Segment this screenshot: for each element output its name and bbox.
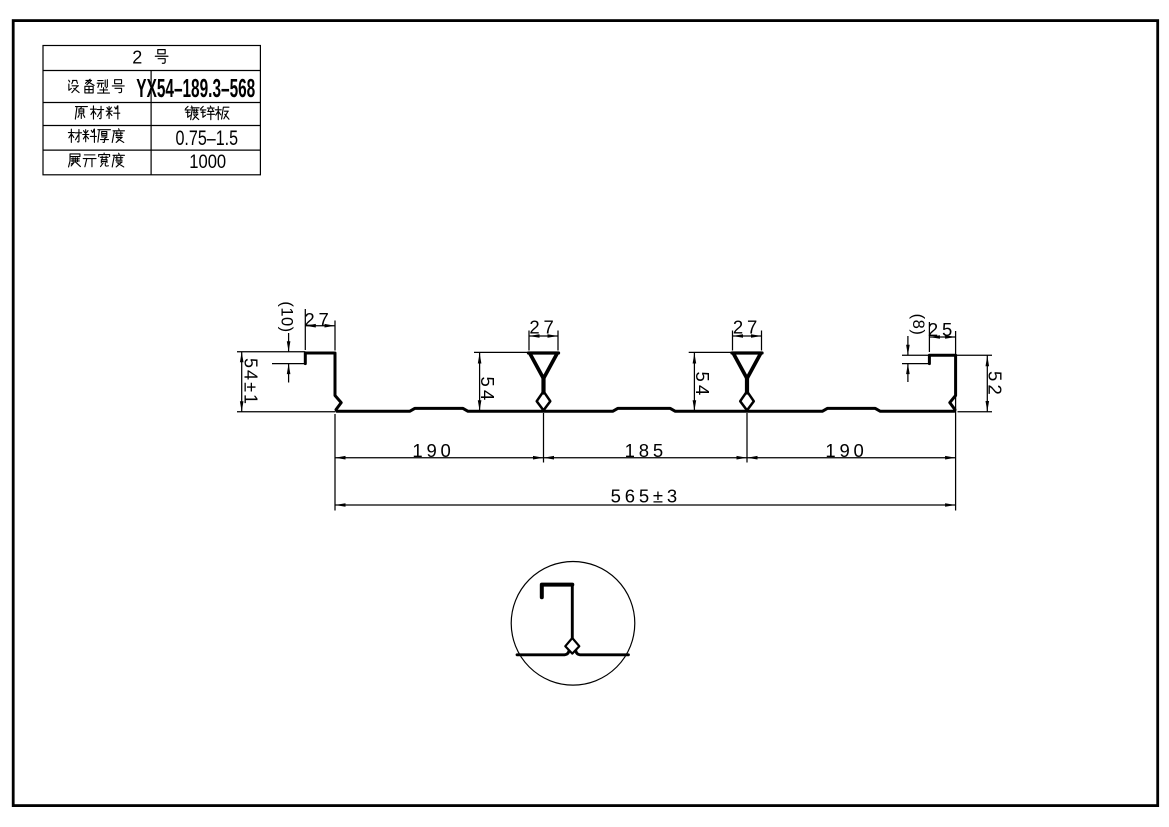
svg-text:27: 27 xyxy=(529,316,557,337)
svg-text:27: 27 xyxy=(733,316,761,337)
svg-text:565±3: 565±3 xyxy=(611,486,681,507)
svg-text:54: 54 xyxy=(692,372,713,399)
svg-text:1000: 1000 xyxy=(189,151,226,173)
svg-text:190: 190 xyxy=(412,440,454,461)
svg-text:54±1: 54±1 xyxy=(241,358,261,406)
svg-text:52: 52 xyxy=(985,371,1006,398)
svg-text:0.75–1.5: 0.75–1.5 xyxy=(176,127,239,151)
svg-text:54: 54 xyxy=(477,377,498,404)
svg-text:YX54–189.3–568: YX54–189.3–568 xyxy=(136,74,255,103)
svg-text:2: 2 xyxy=(132,48,142,68)
svg-text:190: 190 xyxy=(825,440,867,461)
svg-text:185: 185 xyxy=(625,440,667,461)
svg-text:27: 27 xyxy=(304,309,332,330)
svg-text:(8): (8) xyxy=(909,314,927,336)
svg-text:(10): (10) xyxy=(278,301,296,332)
svg-text:25: 25 xyxy=(928,319,956,340)
